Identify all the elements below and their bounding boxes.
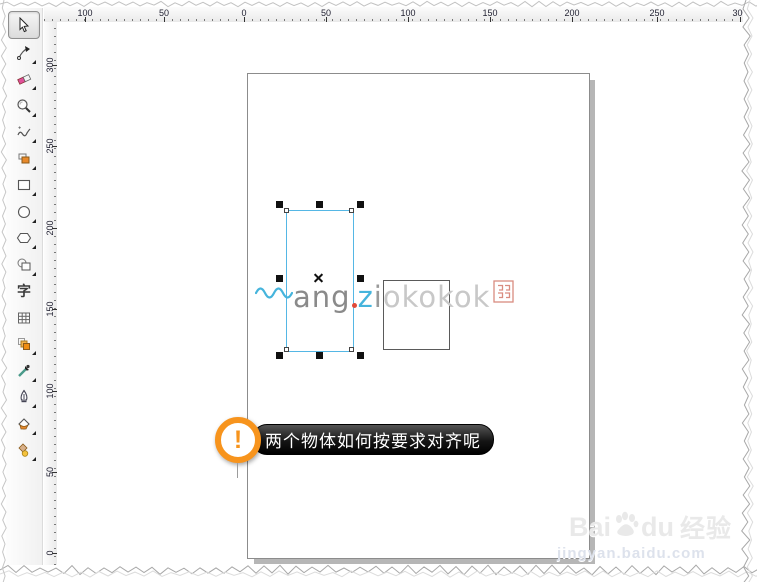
drawing-canvas[interactable]: ang z i okokok 两个物体如何按要求对齐呢 ! Bai du bbox=[57, 22, 743, 565]
vertical-ruler[interactable]: 300250200150100500 bbox=[44, 22, 58, 565]
rectangle-icon bbox=[16, 177, 32, 193]
corner-node[interactable] bbox=[284, 347, 289, 352]
outline-pen-tool[interactable] bbox=[9, 384, 39, 410]
flyout-indicator bbox=[32, 139, 36, 143]
eraser-icon bbox=[16, 71, 32, 87]
basic-shapes-tool[interactable] bbox=[9, 252, 39, 278]
selection-handle-bottom-left[interactable] bbox=[276, 352, 283, 359]
fill-tool[interactable] bbox=[9, 411, 39, 437]
smart-fill-tool[interactable] bbox=[9, 146, 39, 172]
brand-text-du: du bbox=[641, 512, 674, 543]
eyedropper-icon bbox=[16, 363, 32, 379]
unselected-rectangle-shape[interactable] bbox=[383, 280, 450, 350]
site-watermark: Bai du 经验 jingyan.baidu.com bbox=[569, 509, 732, 562]
magnifier-icon bbox=[16, 98, 32, 114]
flyout-indicator bbox=[32, 192, 36, 196]
shape-edit-icon bbox=[16, 45, 32, 61]
text-tool[interactable]: 字 bbox=[9, 278, 39, 304]
selection-handle-top-left[interactable] bbox=[276, 201, 283, 208]
paint-bucket-icon bbox=[16, 416, 32, 432]
ruler-tick-label: 300 bbox=[732, 8, 743, 18]
flyout-indicator bbox=[32, 245, 36, 249]
interactive-fill-icon bbox=[16, 442, 32, 458]
selection-handle-top-right[interactable] bbox=[357, 201, 364, 208]
smart-fill-icon bbox=[16, 151, 32, 167]
rectangle-tool[interactable] bbox=[9, 172, 39, 198]
curve-icon bbox=[16, 124, 32, 140]
text-tool-icon: 字 bbox=[17, 284, 31, 298]
table-tool[interactable] bbox=[9, 305, 39, 331]
toolbox: 字 bbox=[6, 8, 43, 565]
pick-arrow-icon bbox=[16, 17, 32, 33]
flyout-indicator bbox=[32, 457, 36, 461]
paw-icon bbox=[612, 510, 640, 545]
selection-handle-middle-left[interactable] bbox=[276, 275, 283, 282]
eyedropper-tool[interactable] bbox=[9, 358, 39, 384]
selection-center-marker[interactable] bbox=[313, 272, 324, 283]
selection-handle-middle-right[interactable] bbox=[357, 275, 364, 282]
flyout-indicator bbox=[32, 431, 36, 435]
polygon-tool[interactable] bbox=[9, 225, 39, 251]
pen-nib-icon bbox=[16, 389, 32, 405]
polygon-icon bbox=[16, 230, 32, 246]
ellipse-tool[interactable] bbox=[9, 199, 39, 225]
flyout-indicator bbox=[32, 351, 36, 355]
flyout-indicator bbox=[32, 219, 36, 223]
pick-tool[interactable] bbox=[8, 11, 40, 39]
zoom-tool[interactable] bbox=[9, 93, 39, 119]
flyout-indicator bbox=[32, 113, 36, 117]
interactive-fill-tool[interactable] bbox=[9, 437, 39, 463]
ellipse-icon bbox=[16, 204, 32, 220]
flyout-indicator bbox=[32, 60, 36, 64]
shape-tool[interactable] bbox=[9, 40, 39, 66]
crop-eraser-tool[interactable] bbox=[9, 66, 39, 92]
app-window: 字 bbox=[0, 0, 757, 582]
corner-node[interactable] bbox=[349, 208, 354, 213]
selection-handle-bottom-middle[interactable] bbox=[316, 352, 323, 359]
flyout-indicator bbox=[32, 404, 36, 408]
exclamation-icon: ! bbox=[234, 428, 242, 453]
flyout-indicator bbox=[32, 166, 36, 170]
flyout-indicator bbox=[32, 272, 36, 276]
contour-tool[interactable] bbox=[9, 331, 39, 357]
callout-bubble: 两个物体如何按要求对齐呢 bbox=[252, 424, 494, 455]
selection-handle-bottom-right[interactable] bbox=[357, 352, 364, 359]
horizontal-ruler[interactable]: 10050050100150200250300 bbox=[44, 7, 743, 23]
torn-edge-bottom bbox=[0, 562, 757, 582]
selection-handle-top-middle[interactable] bbox=[316, 201, 323, 208]
basic-shapes-icon bbox=[16, 257, 32, 273]
table-grid-icon bbox=[16, 310, 32, 326]
contour-icon bbox=[16, 336, 32, 352]
site-watermark-brand: Bai du 经验 bbox=[569, 509, 732, 545]
flyout-indicator bbox=[32, 378, 36, 382]
callout-stem bbox=[237, 463, 238, 478]
callout-exclamation-badge: ! bbox=[215, 417, 261, 463]
brand-text-cjk: 经验 bbox=[680, 509, 732, 545]
freehand-tool[interactable] bbox=[9, 119, 39, 145]
horizontal-ruler-minor-ticks bbox=[44, 19, 743, 21]
callout-text: 两个物体如何按要求对齐呢 bbox=[265, 427, 481, 452]
corner-node[interactable] bbox=[349, 347, 354, 352]
flyout-indicator bbox=[32, 86, 36, 90]
corner-node[interactable] bbox=[284, 208, 289, 213]
